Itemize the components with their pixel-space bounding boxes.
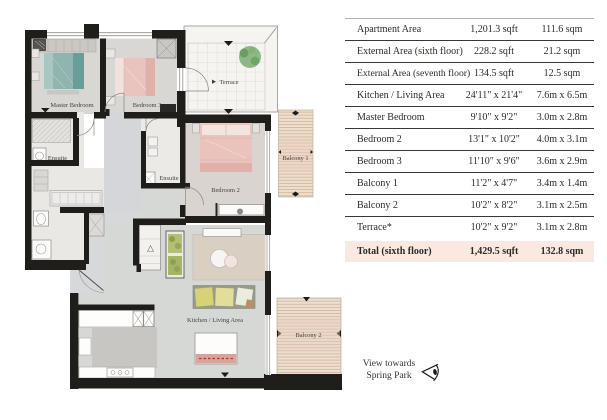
svg-text:Bedroom 3: Bedroom 3 bbox=[133, 102, 162, 109]
svg-text:Master Bedroom: Master Bedroom bbox=[50, 102, 93, 109]
svg-text:Balcony 1: Balcony 1 bbox=[282, 155, 308, 162]
svg-text:Kitchen / Living Area: Kitchen / Living Area bbox=[187, 317, 243, 324]
svg-text:Ensuite: Ensuite bbox=[48, 155, 67, 162]
svg-text:Bedroom 2: Bedroom 2 bbox=[211, 187, 240, 194]
svg-text:Balcony 2: Balcony 2 bbox=[295, 332, 321, 339]
svg-text:Ensuite: Ensuite bbox=[159, 175, 178, 182]
svg-text:Terrace: Terrace bbox=[219, 79, 238, 86]
